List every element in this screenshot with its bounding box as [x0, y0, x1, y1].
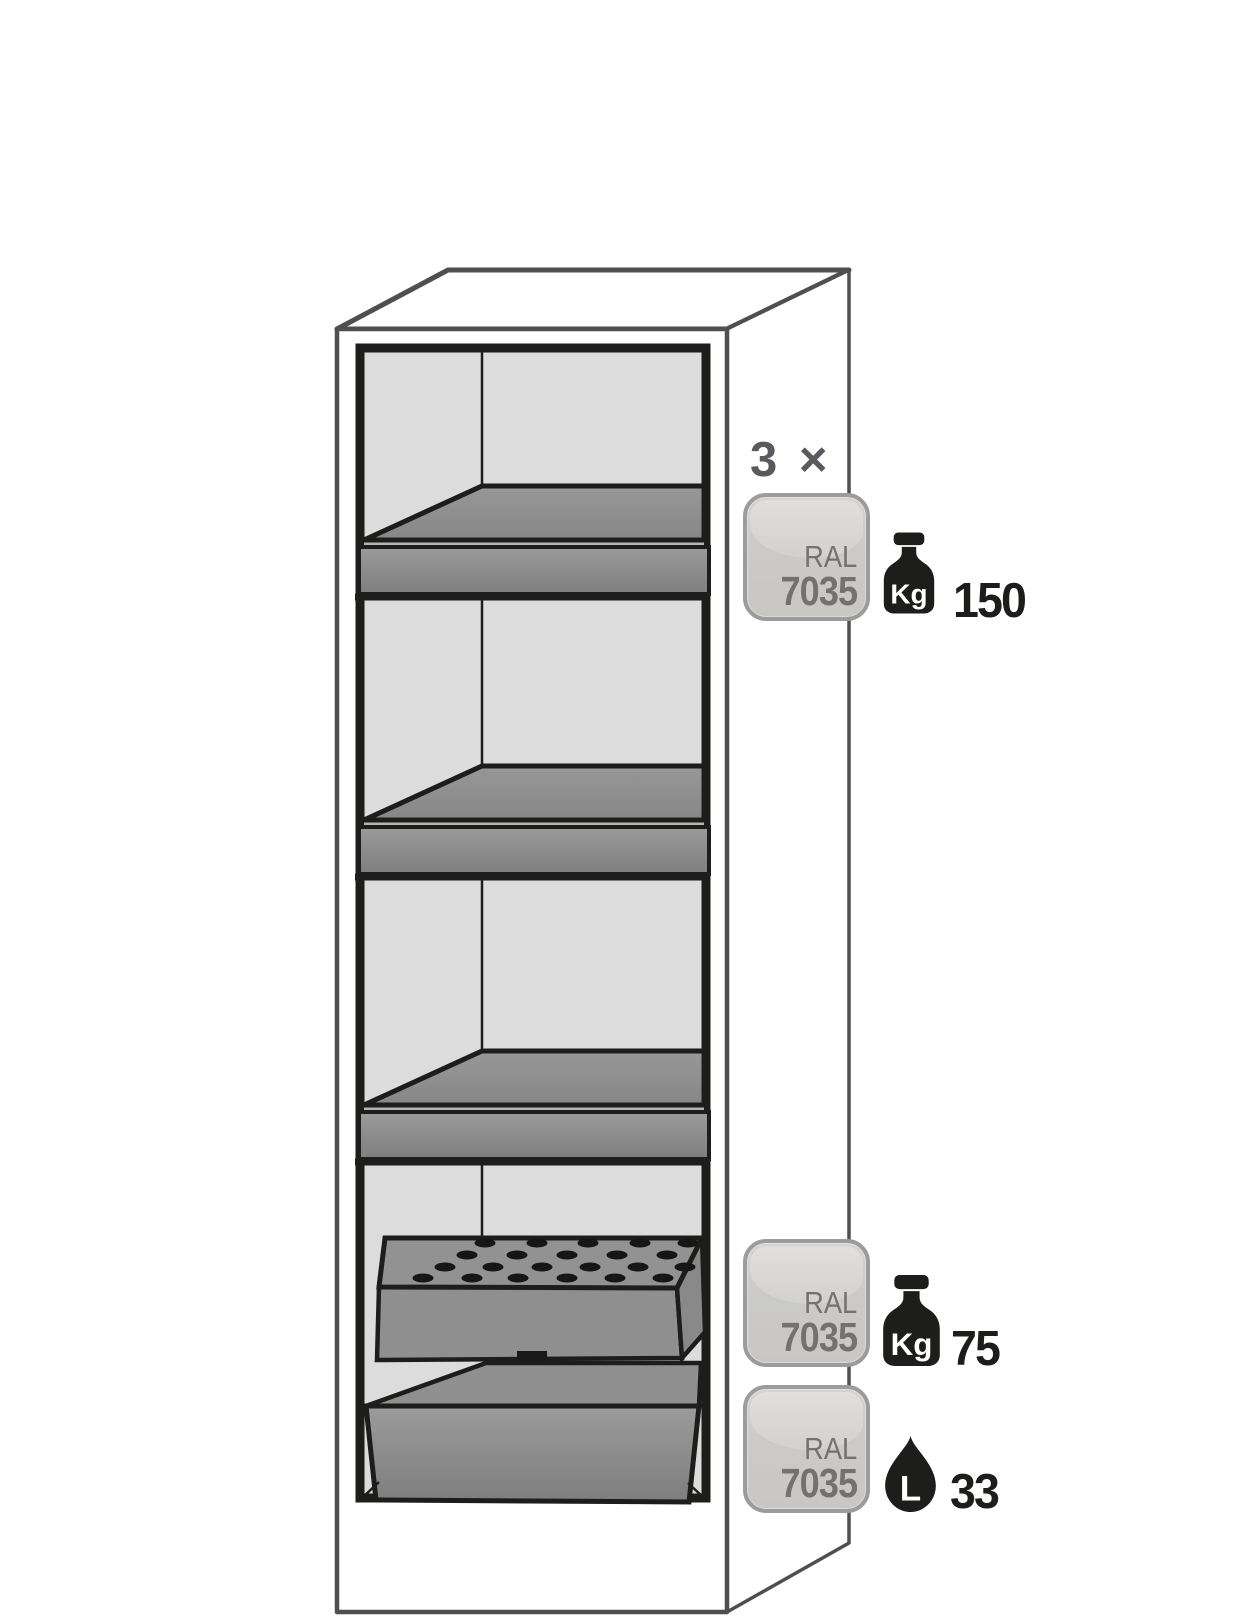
- weight-icon: Kg: [882, 528, 936, 618]
- drop-icon: L: [885, 1436, 936, 1512]
- kg-unit-label: Kg: [890, 579, 927, 610]
- shelf-count-label: 3 ×: [750, 436, 870, 485]
- kg-unit-label: Kg: [891, 1327, 933, 1362]
- ral-code: 7035: [780, 1318, 857, 1356]
- load-value: 75: [951, 1325, 999, 1374]
- weight-icon: Kg: [881, 1275, 942, 1366]
- ral-code: 7035: [780, 572, 857, 610]
- diagram-canvas: 3 × RAL 7035 Kg 150 RAL 7035 Kg 75 RAL 7…: [0, 0, 1241, 1624]
- litre-unit-label: L: [900, 1469, 921, 1508]
- perforated-insert: [377, 1238, 705, 1360]
- ral-7035-badge: RAL 7035: [743, 1385, 870, 1513]
- load-value: 150: [953, 577, 1025, 626]
- ral-7035-badge: RAL 7035: [743, 493, 870, 621]
- ral-7035-badge: RAL 7035: [743, 1239, 870, 1367]
- ral-code: 7035: [780, 1464, 857, 1502]
- cabinet-illustration: [0, 0, 1241, 1624]
- volume-value: 33: [950, 1468, 998, 1517]
